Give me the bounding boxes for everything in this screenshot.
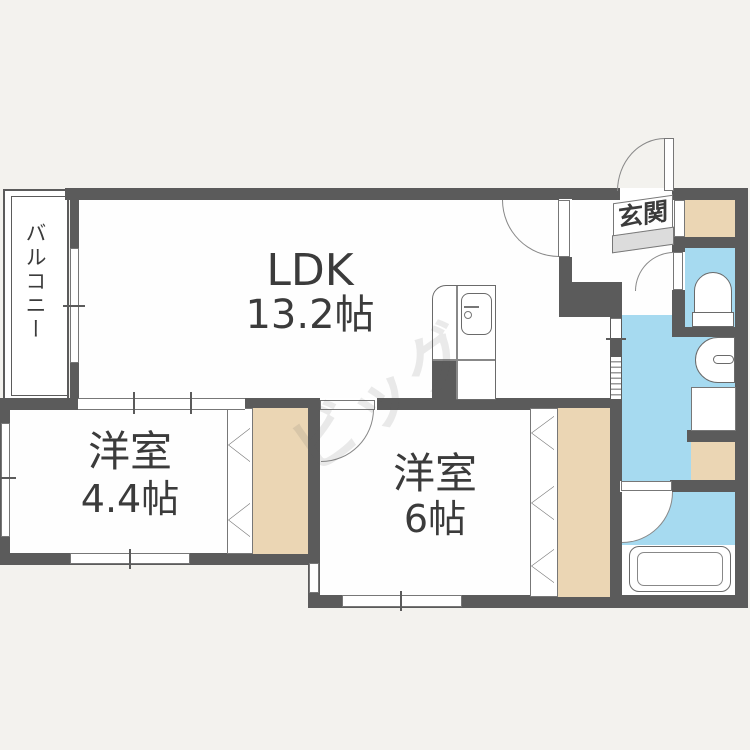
closet-a-fold-icon xyxy=(229,503,251,537)
entrance-door-arc xyxy=(617,138,665,191)
ldk-kitchen-nook xyxy=(555,315,610,400)
ldk-label: LDK xyxy=(200,248,420,294)
washroom xyxy=(622,315,693,485)
wall-toilet-bottom xyxy=(685,327,748,337)
window-tick xyxy=(63,305,85,307)
balcony-label: バルコニー xyxy=(24,222,46,342)
kitchen-faucet-icon xyxy=(464,306,479,308)
closet-b-fold-icon xyxy=(532,486,555,520)
wall-kitchen-washroom xyxy=(610,315,622,490)
window-tick xyxy=(0,477,16,479)
window-tick xyxy=(129,549,131,569)
wall-washer-bottom xyxy=(687,430,748,442)
window-step xyxy=(309,563,319,593)
kitchen-pass-tick xyxy=(606,338,626,340)
bedroom-a-size: 4.4帖 xyxy=(55,480,205,520)
entrance-door-leaf xyxy=(664,138,674,191)
sliding-door-tick xyxy=(190,392,192,414)
bathtub-inner-icon xyxy=(637,552,723,586)
kitchen-counter-hatch xyxy=(611,357,621,399)
kitchen-pass-door xyxy=(611,318,621,340)
storage-box xyxy=(691,442,735,482)
bath-door-leaf xyxy=(621,481,672,491)
window-bedroom-b-bottom xyxy=(342,595,462,607)
bedroom-b-size: 6帖 xyxy=(360,500,510,540)
bedroom-b-label: 洋室 xyxy=(360,452,510,496)
shoe-cabinet-door xyxy=(674,200,685,237)
wall-bath-top xyxy=(670,480,748,492)
washbasin-handle-icon xyxy=(713,355,734,364)
closet-b xyxy=(558,408,610,597)
toilet-tank-icon xyxy=(692,312,734,327)
kitchen-faucet-knob-icon xyxy=(464,311,472,319)
floor-plan: バルコニー xyxy=(0,0,750,750)
closet-b-fold-icon xyxy=(532,416,555,450)
washing-machine-space xyxy=(691,387,736,431)
genkan-label: 玄関 xyxy=(618,199,668,232)
bedroom-a-label: 洋室 xyxy=(55,430,205,474)
window-tick xyxy=(400,591,402,611)
closet-a-fold-icon xyxy=(229,428,251,462)
shoe-cabinet xyxy=(685,198,735,237)
ldk-door-leaf xyxy=(558,200,570,257)
toilet-door-leaf xyxy=(673,252,683,290)
sliding-door-tick xyxy=(133,392,135,414)
wall-hall-jog xyxy=(559,282,622,317)
sliding-door xyxy=(78,398,245,410)
ldk-size: 13.2帖 xyxy=(200,294,420,336)
window-bedroom-a-left xyxy=(1,423,10,537)
closet-b-fold-icon xyxy=(532,549,555,583)
wall-bath-left xyxy=(610,480,622,608)
wall-right xyxy=(735,188,748,608)
